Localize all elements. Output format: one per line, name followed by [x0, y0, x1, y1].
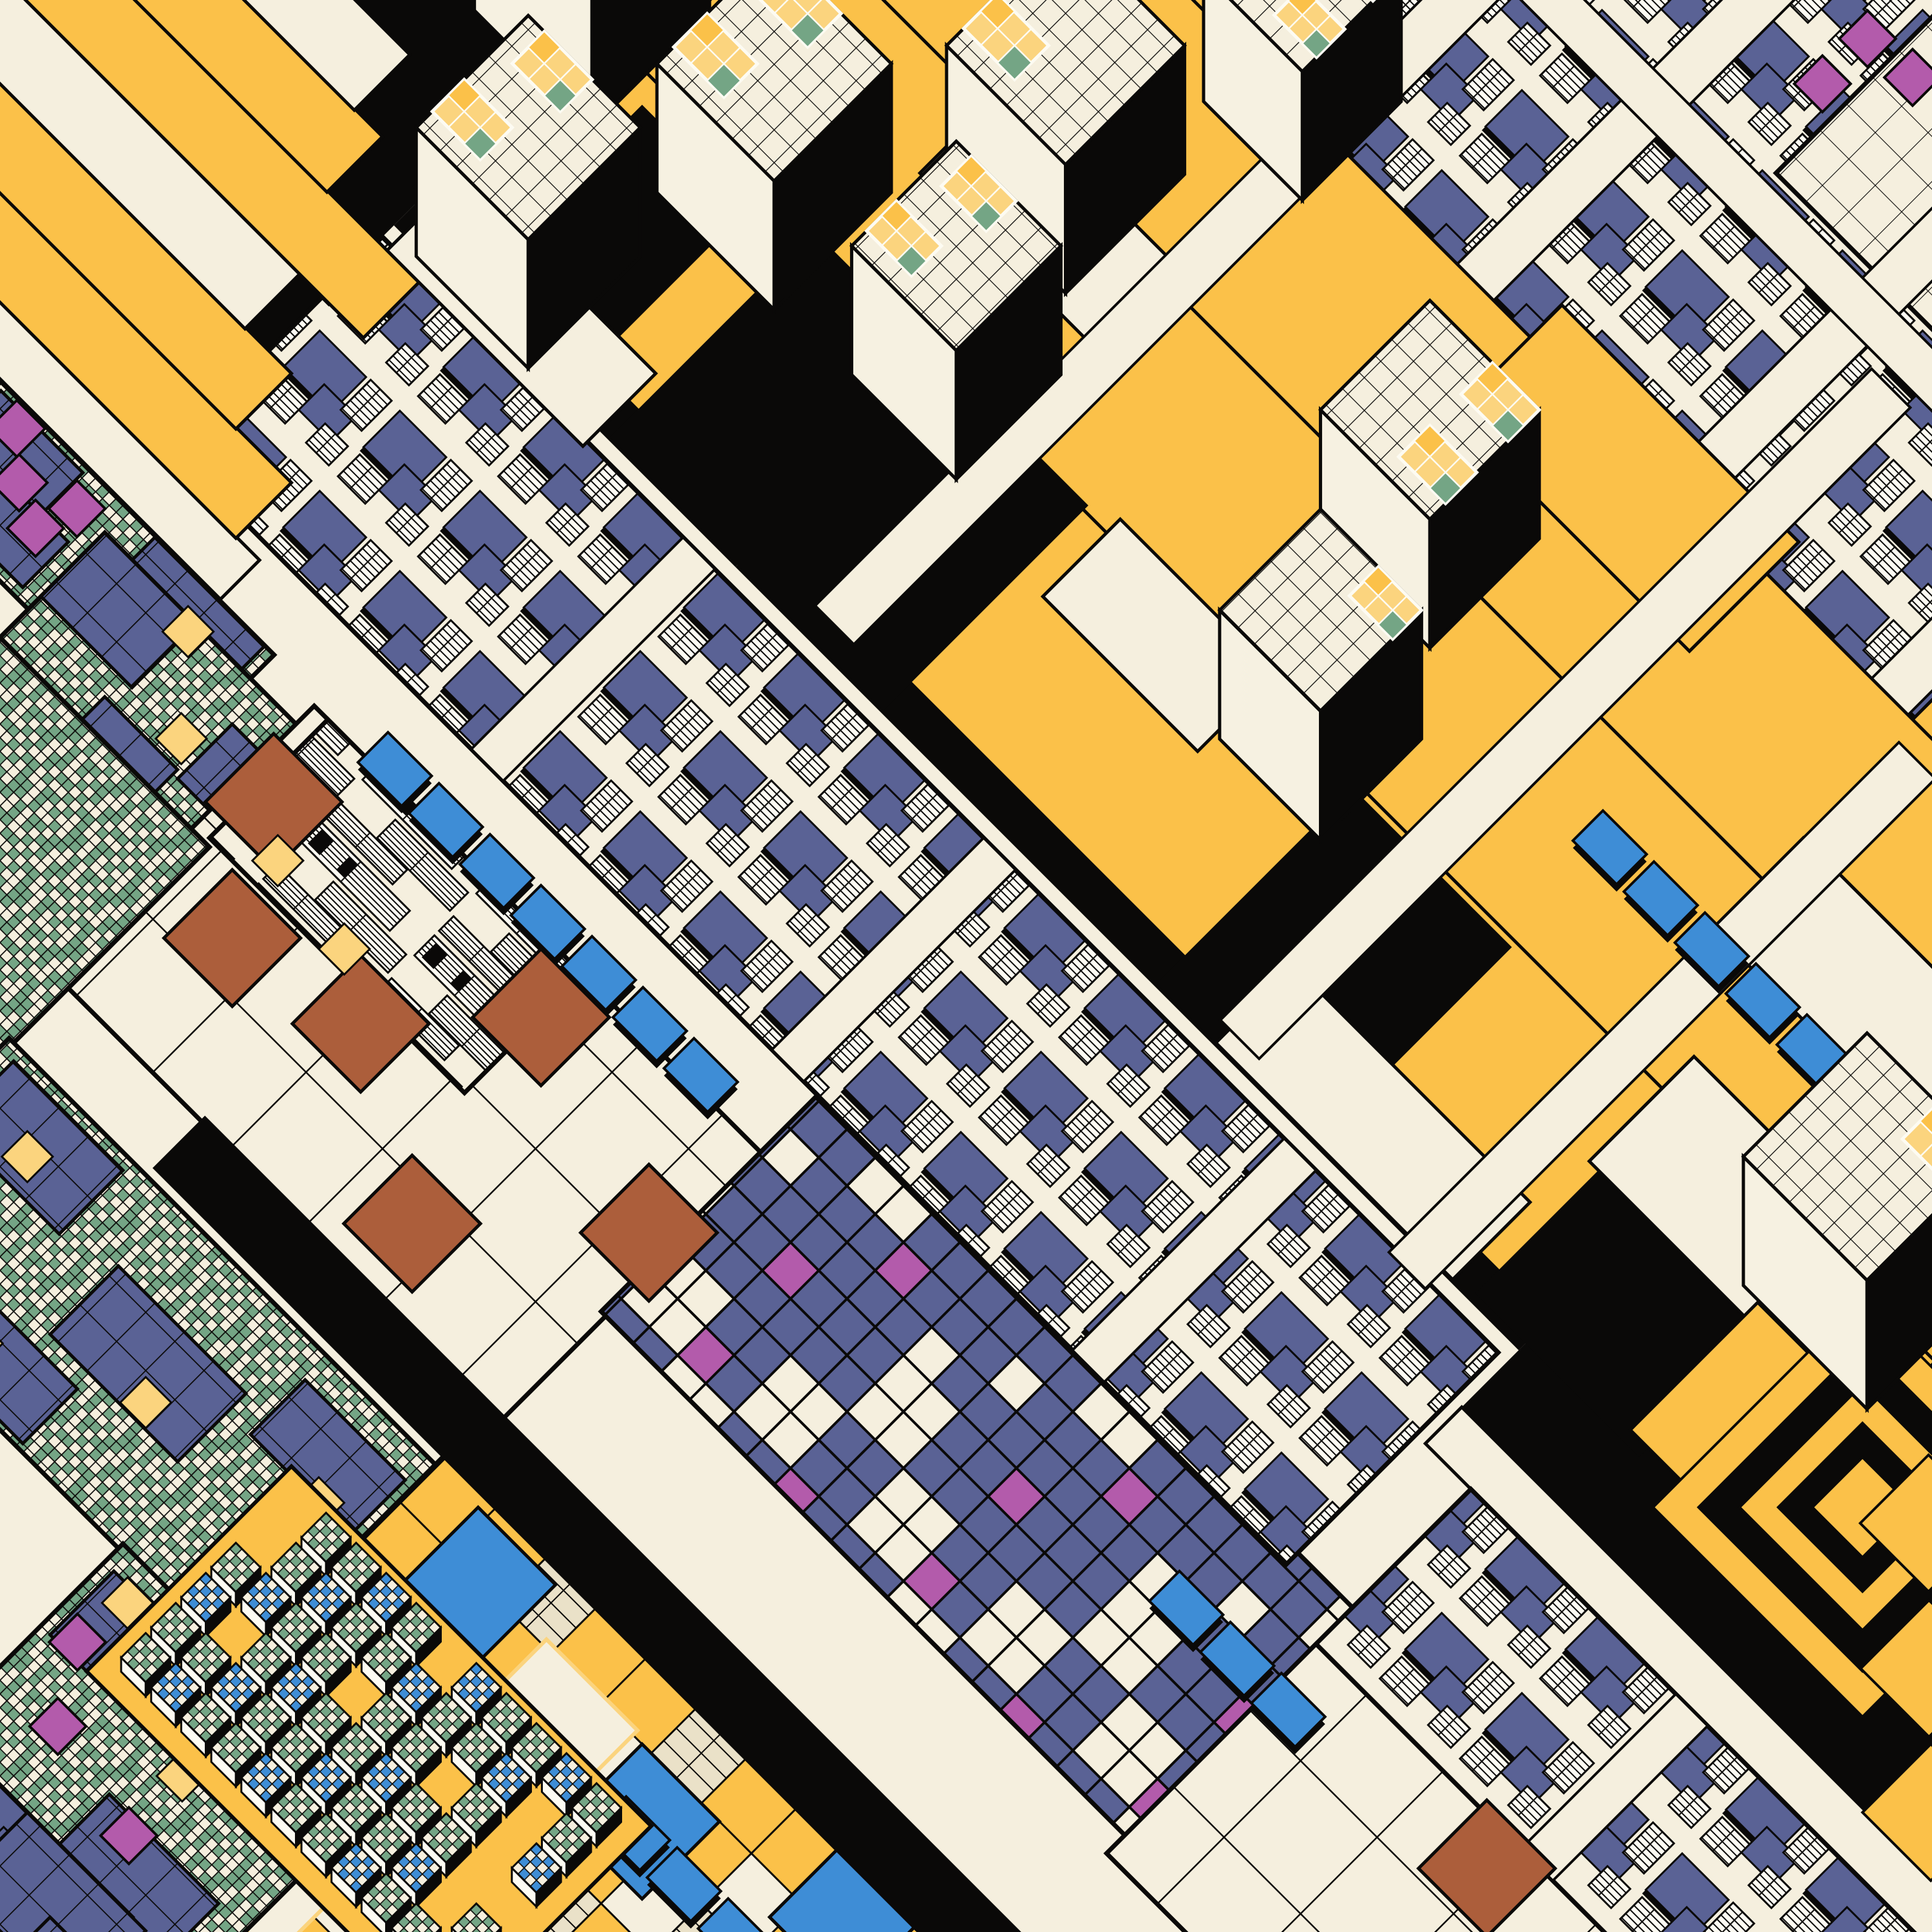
- artwork-stage: [0, 0, 1932, 1932]
- generative-art-canvas: [0, 0, 1932, 1932]
